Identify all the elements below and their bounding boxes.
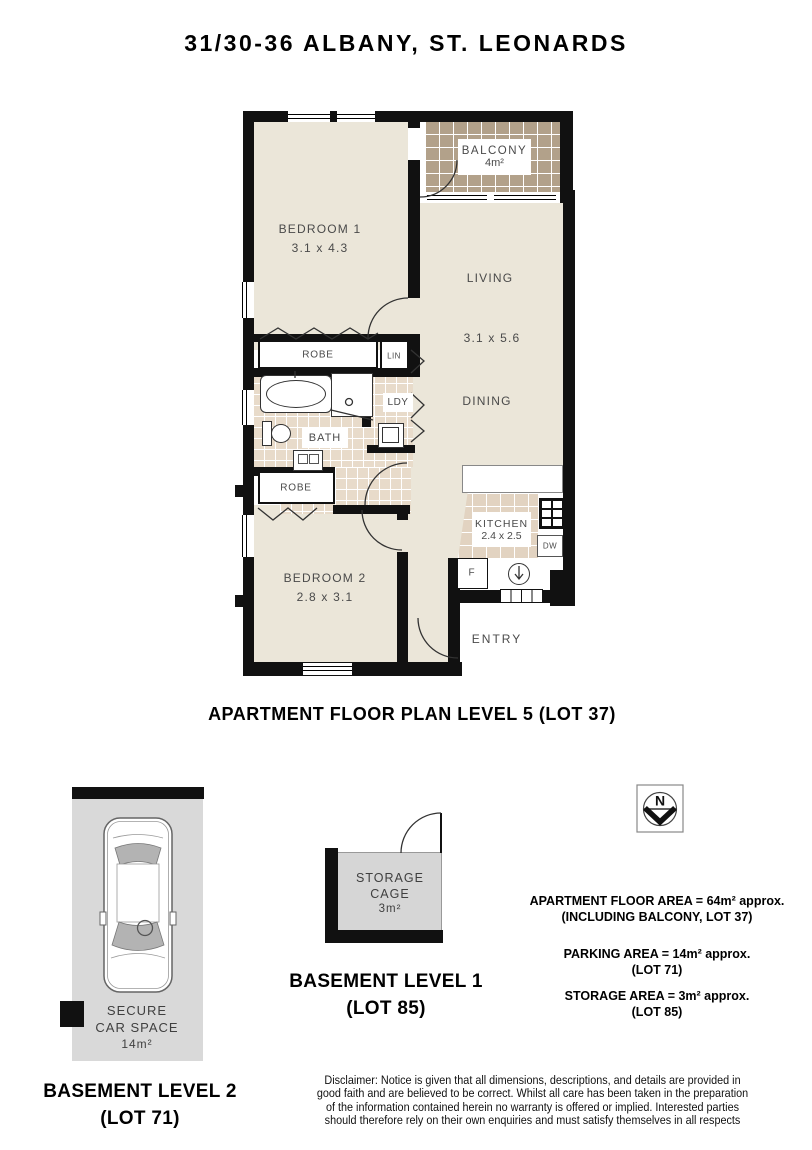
carspace-label-line1: SECURE	[107, 1003, 167, 1018]
carspace-label-line2: CAR SPACE	[95, 1020, 178, 1035]
storage-area-line2: (LOT 85)	[632, 1004, 683, 1020]
disclaimer: Disclaimer: Notice is given that all dim…	[297, 1074, 768, 1128]
dimension-tick	[235, 485, 243, 497]
basement1-caption: BASEMENT LEVEL 1 (LOT 85)	[266, 968, 506, 1022]
balcony-door-arc	[420, 160, 457, 197]
disclaimer-line1: Disclaimer: Notice is given that all dim…	[324, 1074, 740, 1087]
storage-door	[395, 808, 447, 858]
robe-rail-zigzag	[260, 328, 378, 339]
living-dims: 3.1 x 5.6	[464, 331, 521, 345]
bedroom2-label: BEDROOM 2	[284, 571, 367, 585]
basement1-caption-line2: (LOT 85)	[266, 995, 506, 1022]
balcony-label-box: BALCONY 4m²	[458, 139, 531, 175]
carspace-pillar	[60, 1001, 84, 1027]
robe-rail-zigzag	[258, 508, 317, 520]
parking-area-line2: (LOT 71)	[632, 962, 683, 978]
disclaimer-line4: should therefore rely on their own enqui…	[325, 1114, 741, 1127]
bifold-door-chevron	[411, 420, 424, 442]
bath-label: BATH	[309, 432, 342, 444]
basement1-caption-line1: BASEMENT LEVEL 1	[266, 968, 506, 995]
basement2-caption-line1: BASEMENT LEVEL 2	[20, 1078, 260, 1105]
sink-tap	[515, 566, 523, 579]
basement2-caption-line2: (LOT 71)	[20, 1105, 260, 1132]
apartment-area-line2: (INCLUDING BALCONY, LOT 37)	[562, 909, 753, 925]
car-mirror	[170, 912, 176, 925]
basement2-caption: BASEMENT LEVEL 2 (LOT 71)	[20, 1078, 260, 1132]
north-letter: N	[655, 793, 665, 809]
bathroom-door-arc	[365, 463, 407, 505]
storage-label-line1: STORAGE	[356, 871, 424, 885]
dimension-tick	[235, 595, 243, 607]
laundry-label-box: LDY	[383, 393, 413, 412]
area-summary: APARTMENT FLOOR AREA = 64m² approx. (INC…	[512, 893, 802, 1020]
robe-bottom-label: ROBE	[280, 483, 312, 494]
robe-top-label: ROBE	[302, 350, 334, 361]
bedroom1-label: BEDROOM 1	[279, 222, 362, 236]
dishwasher-label: DW	[543, 542, 557, 551]
apartment-floor-plan: BALCONY 4m² KITCHEN 2.4 x 2.5 BEDROOM 1 …	[243, 111, 575, 676]
disclaimer-line3: of the information contained herein no w…	[326, 1101, 739, 1114]
storage-area-line1: STORAGE AREA = 3m² approx.	[565, 988, 750, 1004]
north-arrow-icon: N	[636, 784, 684, 833]
storage-label-line2: CAGE	[370, 887, 409, 901]
page-title: 31/30-36 ALBANY, ST. LEONARDS	[0, 30, 812, 57]
kitchen-label: KITCHEN	[475, 518, 528, 530]
car-mirror	[100, 912, 106, 925]
bifold-door-chevron	[411, 350, 424, 373]
bedroom2-door-arc	[362, 510, 402, 550]
kitchen-dims: 2.4 x 2.5	[481, 530, 521, 542]
floor-plan-page: 31/30-36 ALBANY, ST. LEONARDS	[0, 0, 812, 1150]
living-label: LIVING	[467, 271, 514, 285]
balcony-label: BALCONY	[462, 145, 527, 157]
entry-door-arc	[418, 618, 458, 658]
dining-label: DINING	[462, 394, 511, 408]
carspace-area-label: 14m²	[121, 1037, 152, 1051]
bedroom1-dims: 3.1 x 4.3	[292, 241, 349, 255]
linen-label: LIN	[387, 352, 401, 361]
car-rear-window	[115, 844, 161, 866]
laundry-label: LDY	[388, 397, 409, 408]
carspace-wall	[72, 787, 204, 799]
storage-wall	[325, 930, 443, 943]
entry-label: ENTRY	[472, 632, 522, 646]
kitchen-label-box: KITCHEN 2.4 x 2.5	[472, 512, 531, 547]
storage-door-arc	[401, 813, 441, 853]
bath-label-box: BATH	[302, 427, 348, 448]
apartment-area-line1: APARTMENT FLOOR AREA = 64m² approx.	[530, 893, 785, 909]
floor-plan-caption: APARTMENT FLOOR PLAN LEVEL 5 (LOT 37)	[0, 704, 812, 725]
parking-area-line1: PARKING AREA = 14m² approx.	[564, 946, 751, 962]
car-roof	[117, 864, 159, 922]
shower-head	[346, 399, 353, 406]
car-illustration	[99, 816, 177, 994]
storage-wall	[325, 848, 338, 943]
storage-area-label: 3m²	[379, 903, 402, 915]
balcony-area: 4m²	[485, 157, 504, 169]
fridge-label: F	[469, 568, 476, 579]
shower-screen-line	[331, 410, 373, 420]
bedroom2-dims: 2.8 x 3.1	[297, 590, 354, 604]
bedroom1-door-arc	[368, 298, 408, 338]
disclaimer-line2: good faith and are believed to be correc…	[317, 1087, 748, 1100]
